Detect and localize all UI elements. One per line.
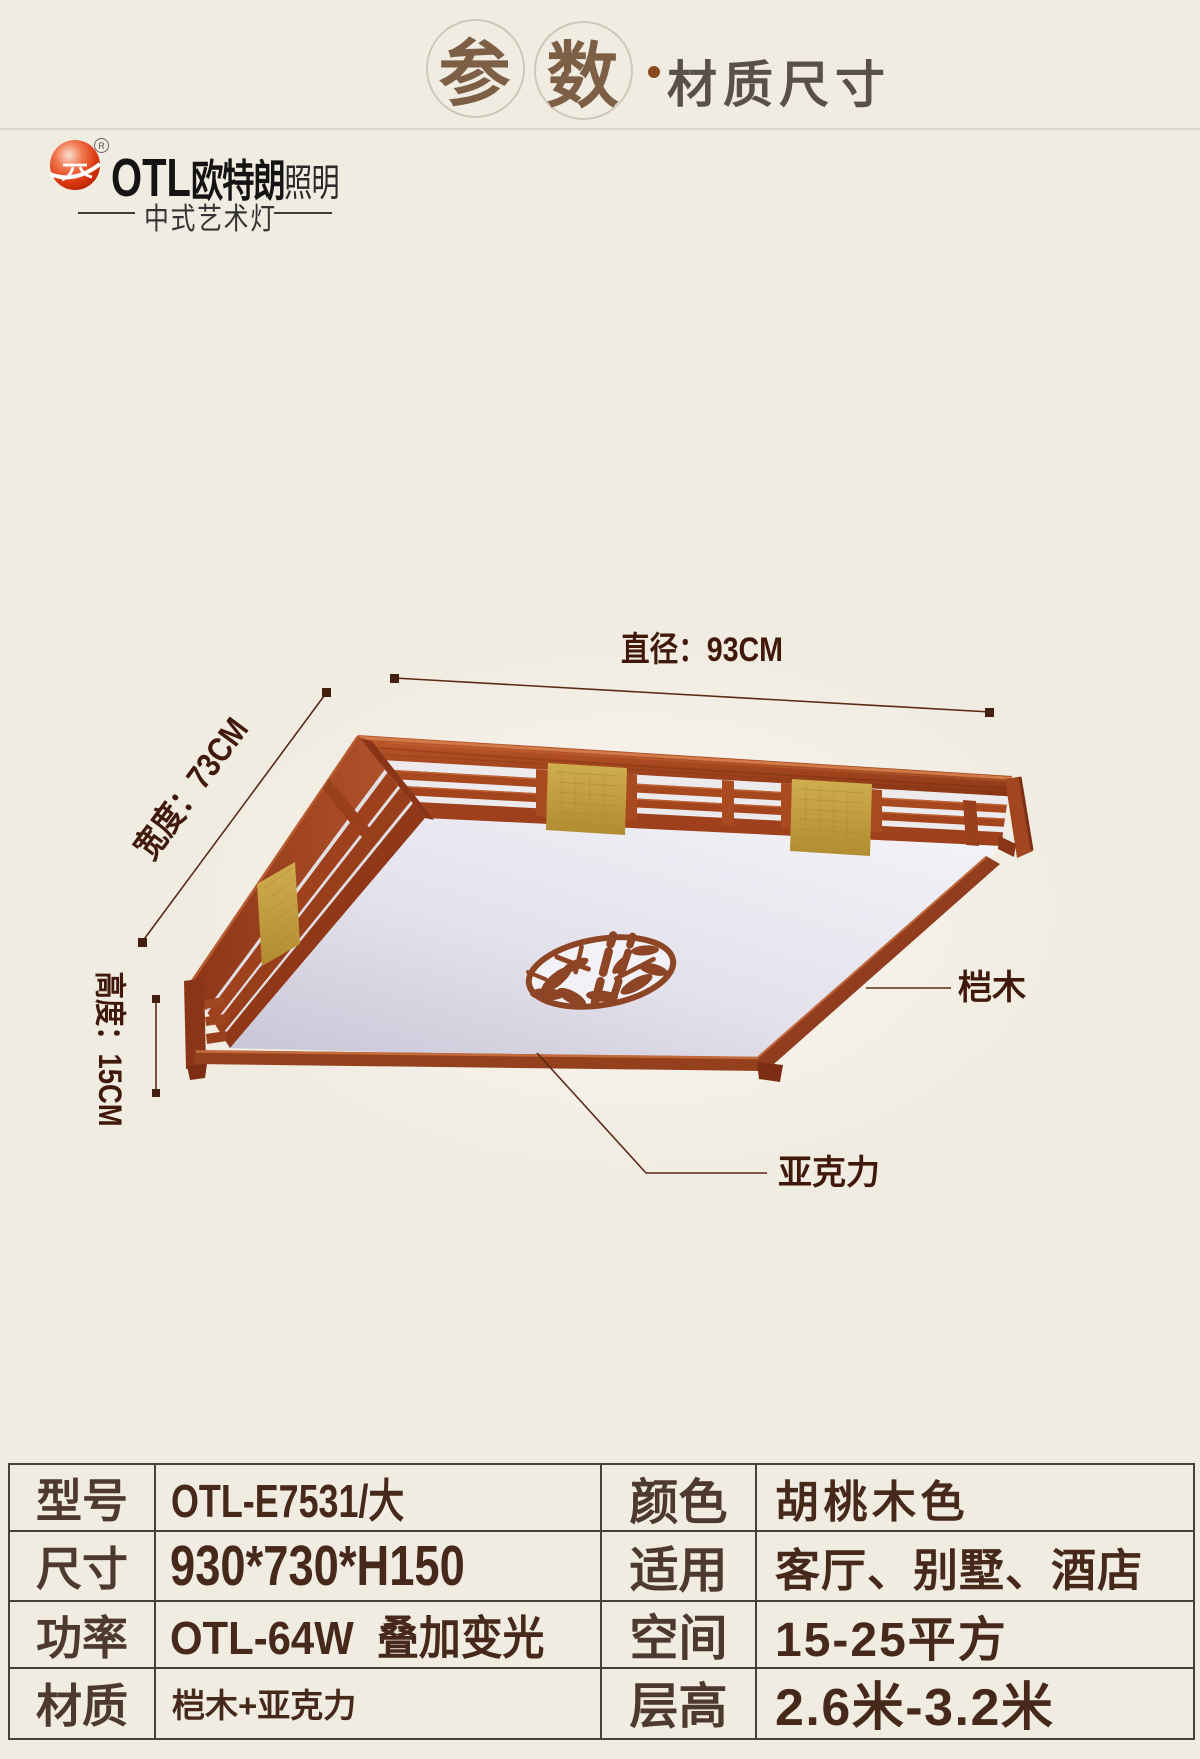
svg-text:亚克力: 亚克力 xyxy=(778,1154,880,1192)
svg-text:直径：93CM: 直径：93CM xyxy=(621,631,783,669)
svg-text:桤木: 桤木 xyxy=(958,969,1026,1007)
svg-text:高度：15CM: 高度：15CM xyxy=(92,972,128,1127)
svg-text:宽度：73CM: 宽度：73CM xyxy=(127,710,256,866)
